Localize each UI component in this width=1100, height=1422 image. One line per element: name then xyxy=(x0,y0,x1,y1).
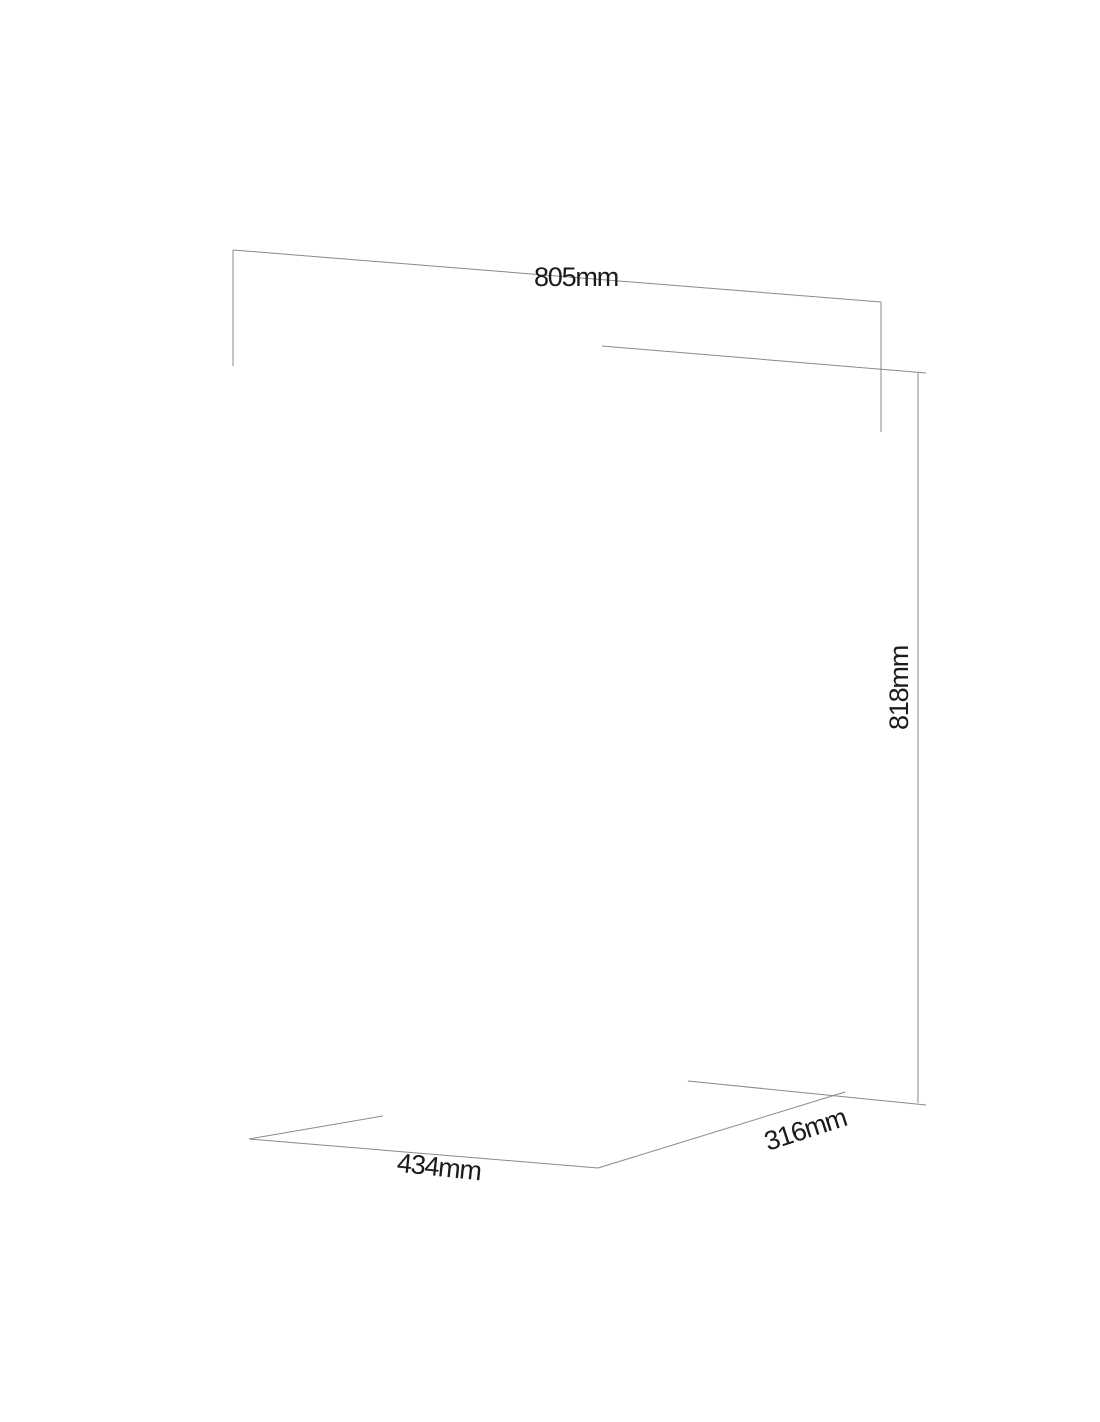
svg-text:818mm: 818mm xyxy=(884,646,914,730)
svg-text:805mm: 805mm xyxy=(534,262,618,292)
